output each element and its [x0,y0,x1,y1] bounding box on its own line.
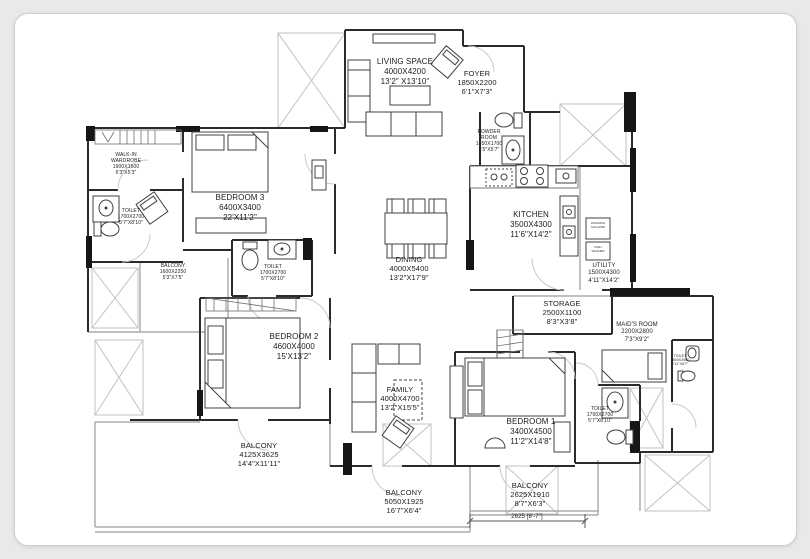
black-wall-accents [86,92,690,475]
floor-plan-page: LIVING SPACE 4000X4200 13'2" X13'10" FOY… [0,0,810,559]
dimension-line [467,514,588,528]
furniture [93,34,699,452]
floor-plan-drawing [0,0,810,559]
